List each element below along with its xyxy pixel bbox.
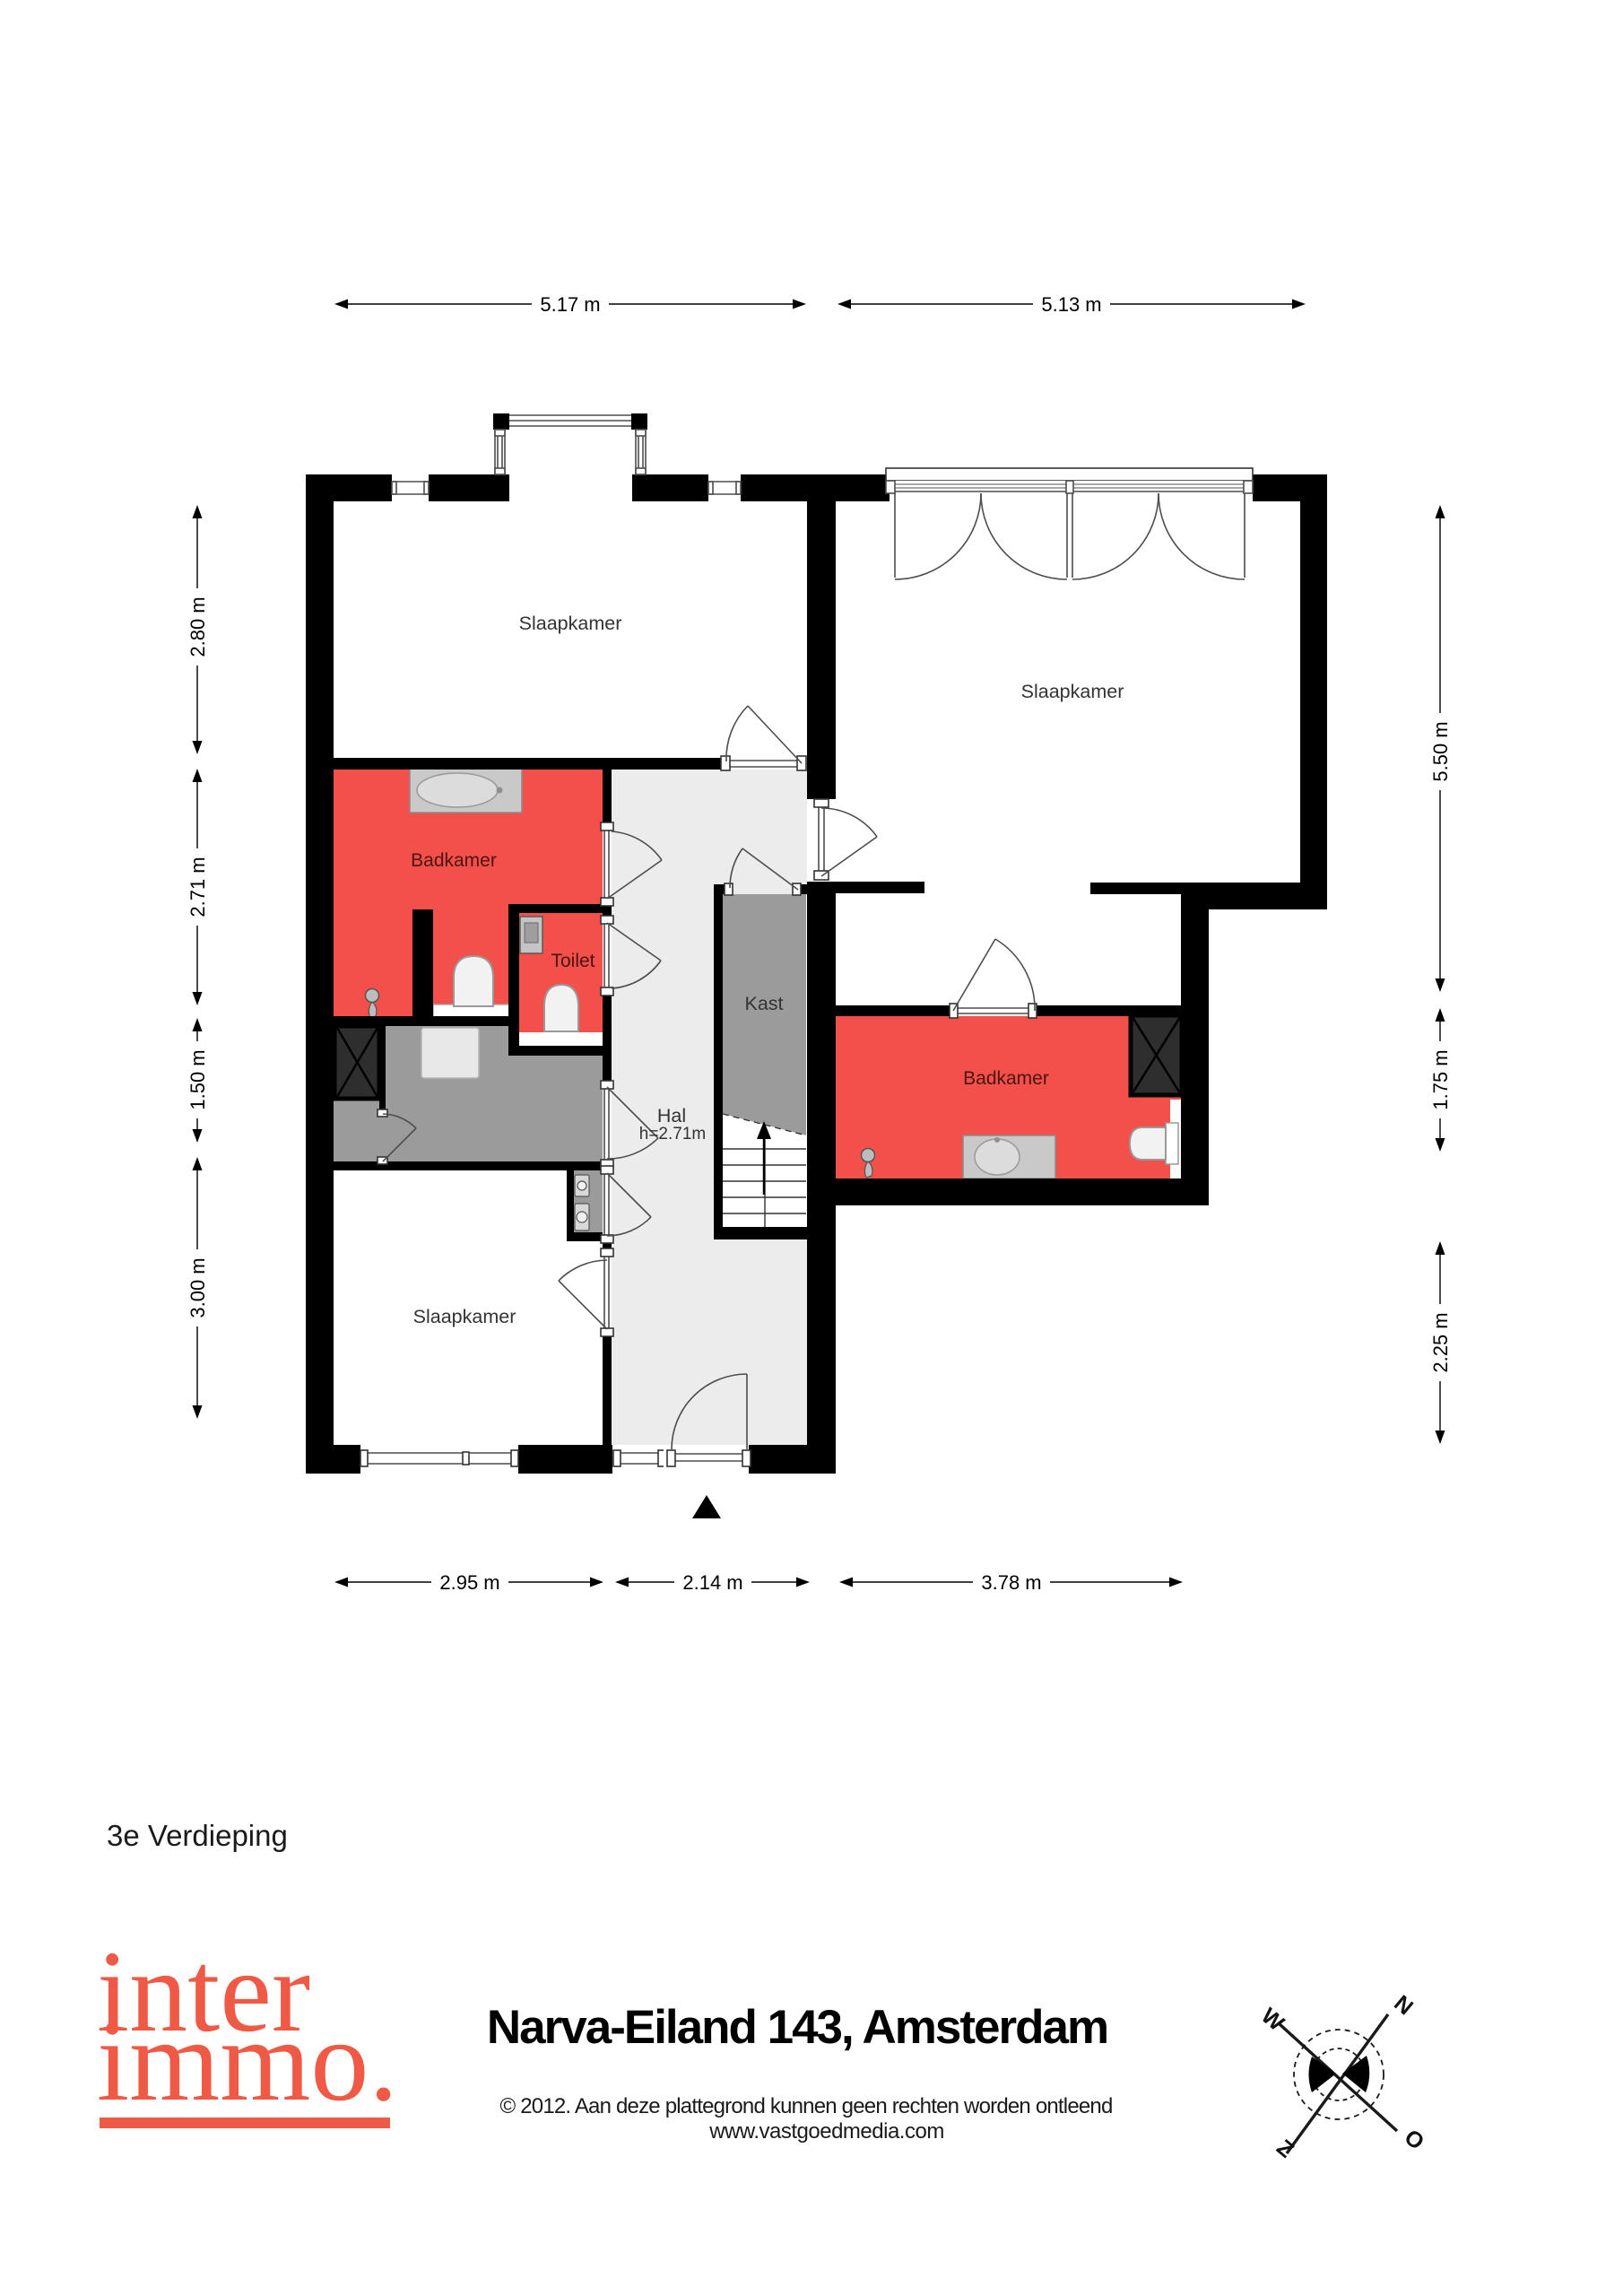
svg-text:N: N xyxy=(1389,1990,1418,2020)
svg-text:Badkamer: Badkamer xyxy=(963,1068,1049,1089)
svg-text:Kast: Kast xyxy=(744,993,783,1014)
svg-text:W: W xyxy=(1256,2004,1289,2037)
svg-text:Badkamer: Badkamer xyxy=(411,850,497,871)
svg-text:5.17 m: 5.17 m xyxy=(540,293,600,316)
svg-text:Narva-Eiland 143, Amsterdam: Narva-Eiland 143, Amsterdam xyxy=(487,2001,1107,2054)
svg-text:1.75 m: 1.75 m xyxy=(1429,1049,1452,1109)
svg-text:Slaapkamer: Slaapkamer xyxy=(1021,681,1124,702)
svg-text:2.14 m: 2.14 m xyxy=(682,1571,742,1594)
svg-text:2.71 m: 2.71 m xyxy=(187,857,209,917)
svg-text:3.78 m: 3.78 m xyxy=(981,1571,1041,1594)
svg-text:www.vastgoedmedia.com: www.vastgoedmedia.com xyxy=(708,2119,944,2144)
svg-text:Z: Z xyxy=(1271,2135,1298,2162)
svg-text:Hal: Hal xyxy=(657,1105,686,1126)
svg-text:2.95 m: 2.95 m xyxy=(439,1571,499,1594)
svg-text:Slaapkamer: Slaapkamer xyxy=(519,613,622,634)
svg-text:5.50 m: 5.50 m xyxy=(1429,721,1452,781)
svg-text:2.25 m: 2.25 m xyxy=(1429,1312,1452,1372)
svg-text:2.80 m: 2.80 m xyxy=(187,596,209,657)
svg-text:Toilet: Toilet xyxy=(551,951,595,971)
svg-text:immo.: immo. xyxy=(97,1996,398,2126)
svg-text:h=2.71m: h=2.71m xyxy=(639,1125,706,1144)
svg-text:Slaapkamer: Slaapkamer xyxy=(413,1306,516,1327)
svg-text:5.13 m: 5.13 m xyxy=(1041,293,1101,316)
svg-text:© 2012. Aan deze plattegrond k: © 2012. Aan deze plattegrond kunnen geen… xyxy=(499,2094,1112,2118)
svg-text:1.50 m: 1.50 m xyxy=(187,1049,209,1109)
svg-text:3.00 m: 3.00 m xyxy=(187,1257,209,1318)
svg-text:3e Verdieping: 3e Verdieping xyxy=(107,1819,288,1852)
svg-text:O: O xyxy=(1400,2125,1429,2155)
